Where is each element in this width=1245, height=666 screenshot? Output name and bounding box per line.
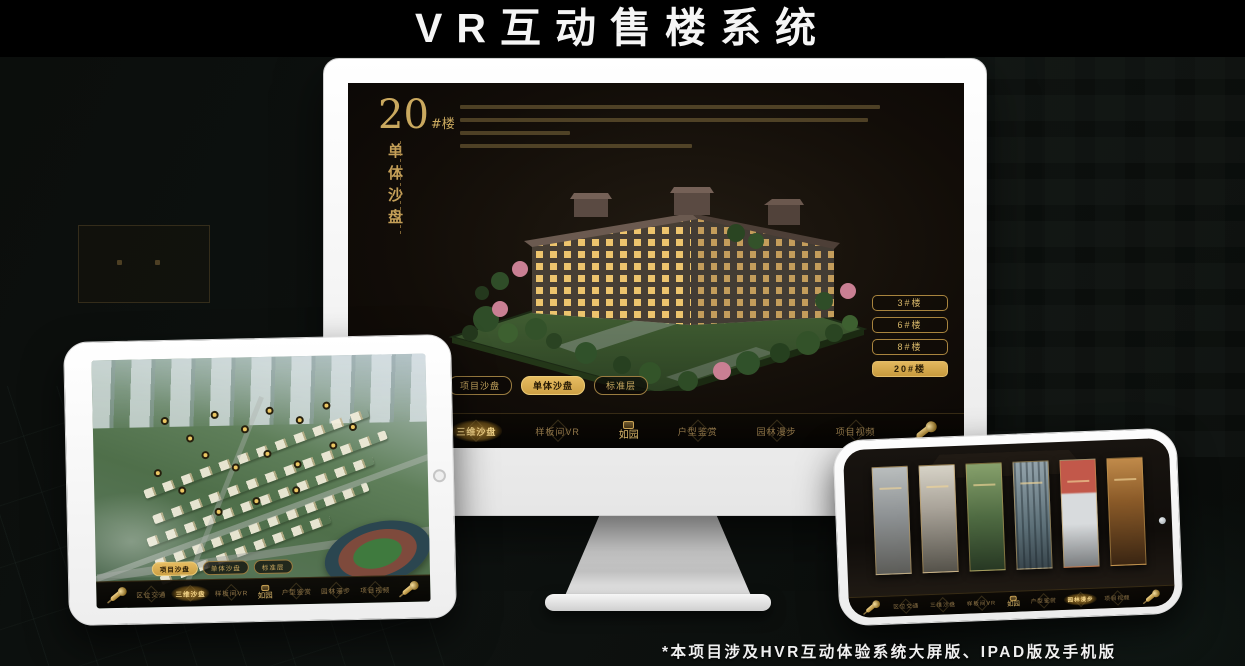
tab-standard-floor[interactable]: 标准层 <box>254 559 293 574</box>
nav-item-project-video[interactable]: 项目视频 <box>836 425 876 438</box>
nav-item-3d-sandtable[interactable]: 三维沙盘 <box>456 425 496 438</box>
logo-text: 如园 <box>1007 601 1020 608</box>
nav-item-unit-plans[interactable]: 户型鉴赏 <box>282 586 312 597</box>
scroll-icon[interactable] <box>402 582 417 596</box>
building-button-8[interactable]: 8#楼 <box>872 339 948 355</box>
logo-crest-icon <box>623 421 634 429</box>
building-render <box>436 141 876 391</box>
logo-text: 如园 <box>619 431 639 441</box>
nav-item-location[interactable]: 区位交通 <box>136 589 166 600</box>
nav-item-unit-plans[interactable]: 户型鉴赏 <box>1031 596 1057 605</box>
tab-standard-floor[interactable]: 标准层 <box>594 376 648 395</box>
tablet-screen: 项目沙盘 单体沙盘 标准层 区位交通 三维沙盘 样板间VR 如园 户型鉴赏 园林… <box>91 354 430 609</box>
nav-item-showroom-vr[interactable]: 样板间VR <box>967 599 996 608</box>
background-buildings-texture <box>945 57 1245 457</box>
nav-item-showroom-vr[interactable]: 样板间VR <box>215 587 249 598</box>
footnote: *本项目涉及HVR互动体验系统大屏版、IPAD版及手机版 <box>662 640 1117 662</box>
tablet-device: 项目沙盘 单体沙盘 标准层 区位交通 三维沙盘 样板间VR 如园 户型鉴赏 园林… <box>63 334 457 626</box>
nav-item-garden-walk[interactable]: 园林漫步 <box>321 585 351 596</box>
floor-number-suffix: #楼 <box>431 117 455 132</box>
scroll-icon[interactable] <box>866 601 879 613</box>
floor-number-value: 20 <box>378 92 429 138</box>
building-number-markers <box>91 360 95 364</box>
aerial-city-area <box>91 354 426 429</box>
gallery-panel[interactable] <box>1106 457 1146 566</box>
nav-item-3d-sandtable[interactable]: 三维沙盘 <box>175 588 205 599</box>
tab-project-sandtable[interactable]: 项目沙盘 <box>448 376 512 395</box>
nav-item-unit-plans[interactable]: 户型鉴赏 <box>678 425 718 438</box>
building-selector: 3#楼 6#楼 8#楼 20#楼 <box>872 295 948 377</box>
phone-screen: 区位交通 三维沙盘 样板间VR 如园 户型鉴赏 园林漫步 项目视频 <box>843 438 1175 618</box>
monitor-stand-base <box>545 594 771 611</box>
phone-navbar: 区位交通 三维沙盘 样板间VR 如园 户型鉴赏 园林漫步 项目视频 <box>849 585 1176 618</box>
title-band: VR互动售楼系统 <box>0 0 1245 57</box>
building-button-20[interactable]: 20#楼 <box>872 361 948 377</box>
tab-project-sandtable[interactable]: 项目沙盘 <box>152 561 198 576</box>
decorative-divider <box>400 141 401 237</box>
section-title-vertical: 单体沙盘 <box>384 143 405 231</box>
nav-item-project-video[interactable]: 项目视频 <box>1104 593 1130 602</box>
brand-logo[interactable]: 如园 <box>257 585 272 600</box>
building-button-3[interactable]: 3#楼 <box>872 295 948 311</box>
brand-logo[interactable]: 如园 <box>619 421 639 441</box>
tablet-view-tabs: 项目沙盘 单体沙盘 标准层 <box>152 559 293 576</box>
tab-single-sandtable[interactable]: 单体沙盘 <box>521 376 585 395</box>
background-plaque <box>78 225 210 303</box>
nav-item-garden-walk[interactable]: 园林漫步 <box>1067 595 1093 604</box>
gallery-panel[interactable] <box>1059 459 1099 568</box>
gallery-panels <box>844 456 1174 576</box>
gallery-panel[interactable] <box>871 466 911 575</box>
nav-item-showroom-vr[interactable]: 样板间VR <box>535 425 580 438</box>
tablet-navbar: 区位交通 三维沙盘 样板间VR 如园 户型鉴赏 园林漫步 项目视频 <box>96 574 430 608</box>
scroll-icon[interactable] <box>1145 590 1158 602</box>
brand-logo[interactable]: 如园 <box>1007 595 1020 608</box>
nav-item-garden-walk[interactable]: 园林漫步 <box>757 425 797 438</box>
phone-device: 区位交通 三维沙盘 样板间VR 如园 户型鉴赏 园林漫步 项目视频 <box>833 427 1184 626</box>
nav-item-location[interactable]: 区位交通 <box>893 601 919 610</box>
nav-item-project-video[interactable]: 项目视频 <box>360 584 390 595</box>
poster: VR互动售楼系统 20#楼 单体沙盘 <box>0 0 1245 666</box>
scroll-icon[interactable] <box>109 588 124 602</box>
home-button[interactable] <box>433 469 446 482</box>
floor-number: 20#楼 <box>378 95 455 135</box>
gallery-panel[interactable] <box>965 462 1005 571</box>
building-button-6[interactable]: 6#楼 <box>872 317 948 333</box>
view-tabs: 项目沙盘 单体沙盘 标准层 <box>448 376 648 395</box>
gallery-panel[interactable] <box>1012 460 1052 569</box>
nav-item-3d-sandtable[interactable]: 三维沙盘 <box>930 600 956 609</box>
logo-crest-icon <box>261 585 269 591</box>
gallery-panel[interactable] <box>918 464 958 573</box>
tab-single-sandtable[interactable]: 单体沙盘 <box>203 560 249 575</box>
page-title: VR互动售楼系统 <box>0 0 1245 56</box>
logo-text: 如园 <box>258 592 273 600</box>
